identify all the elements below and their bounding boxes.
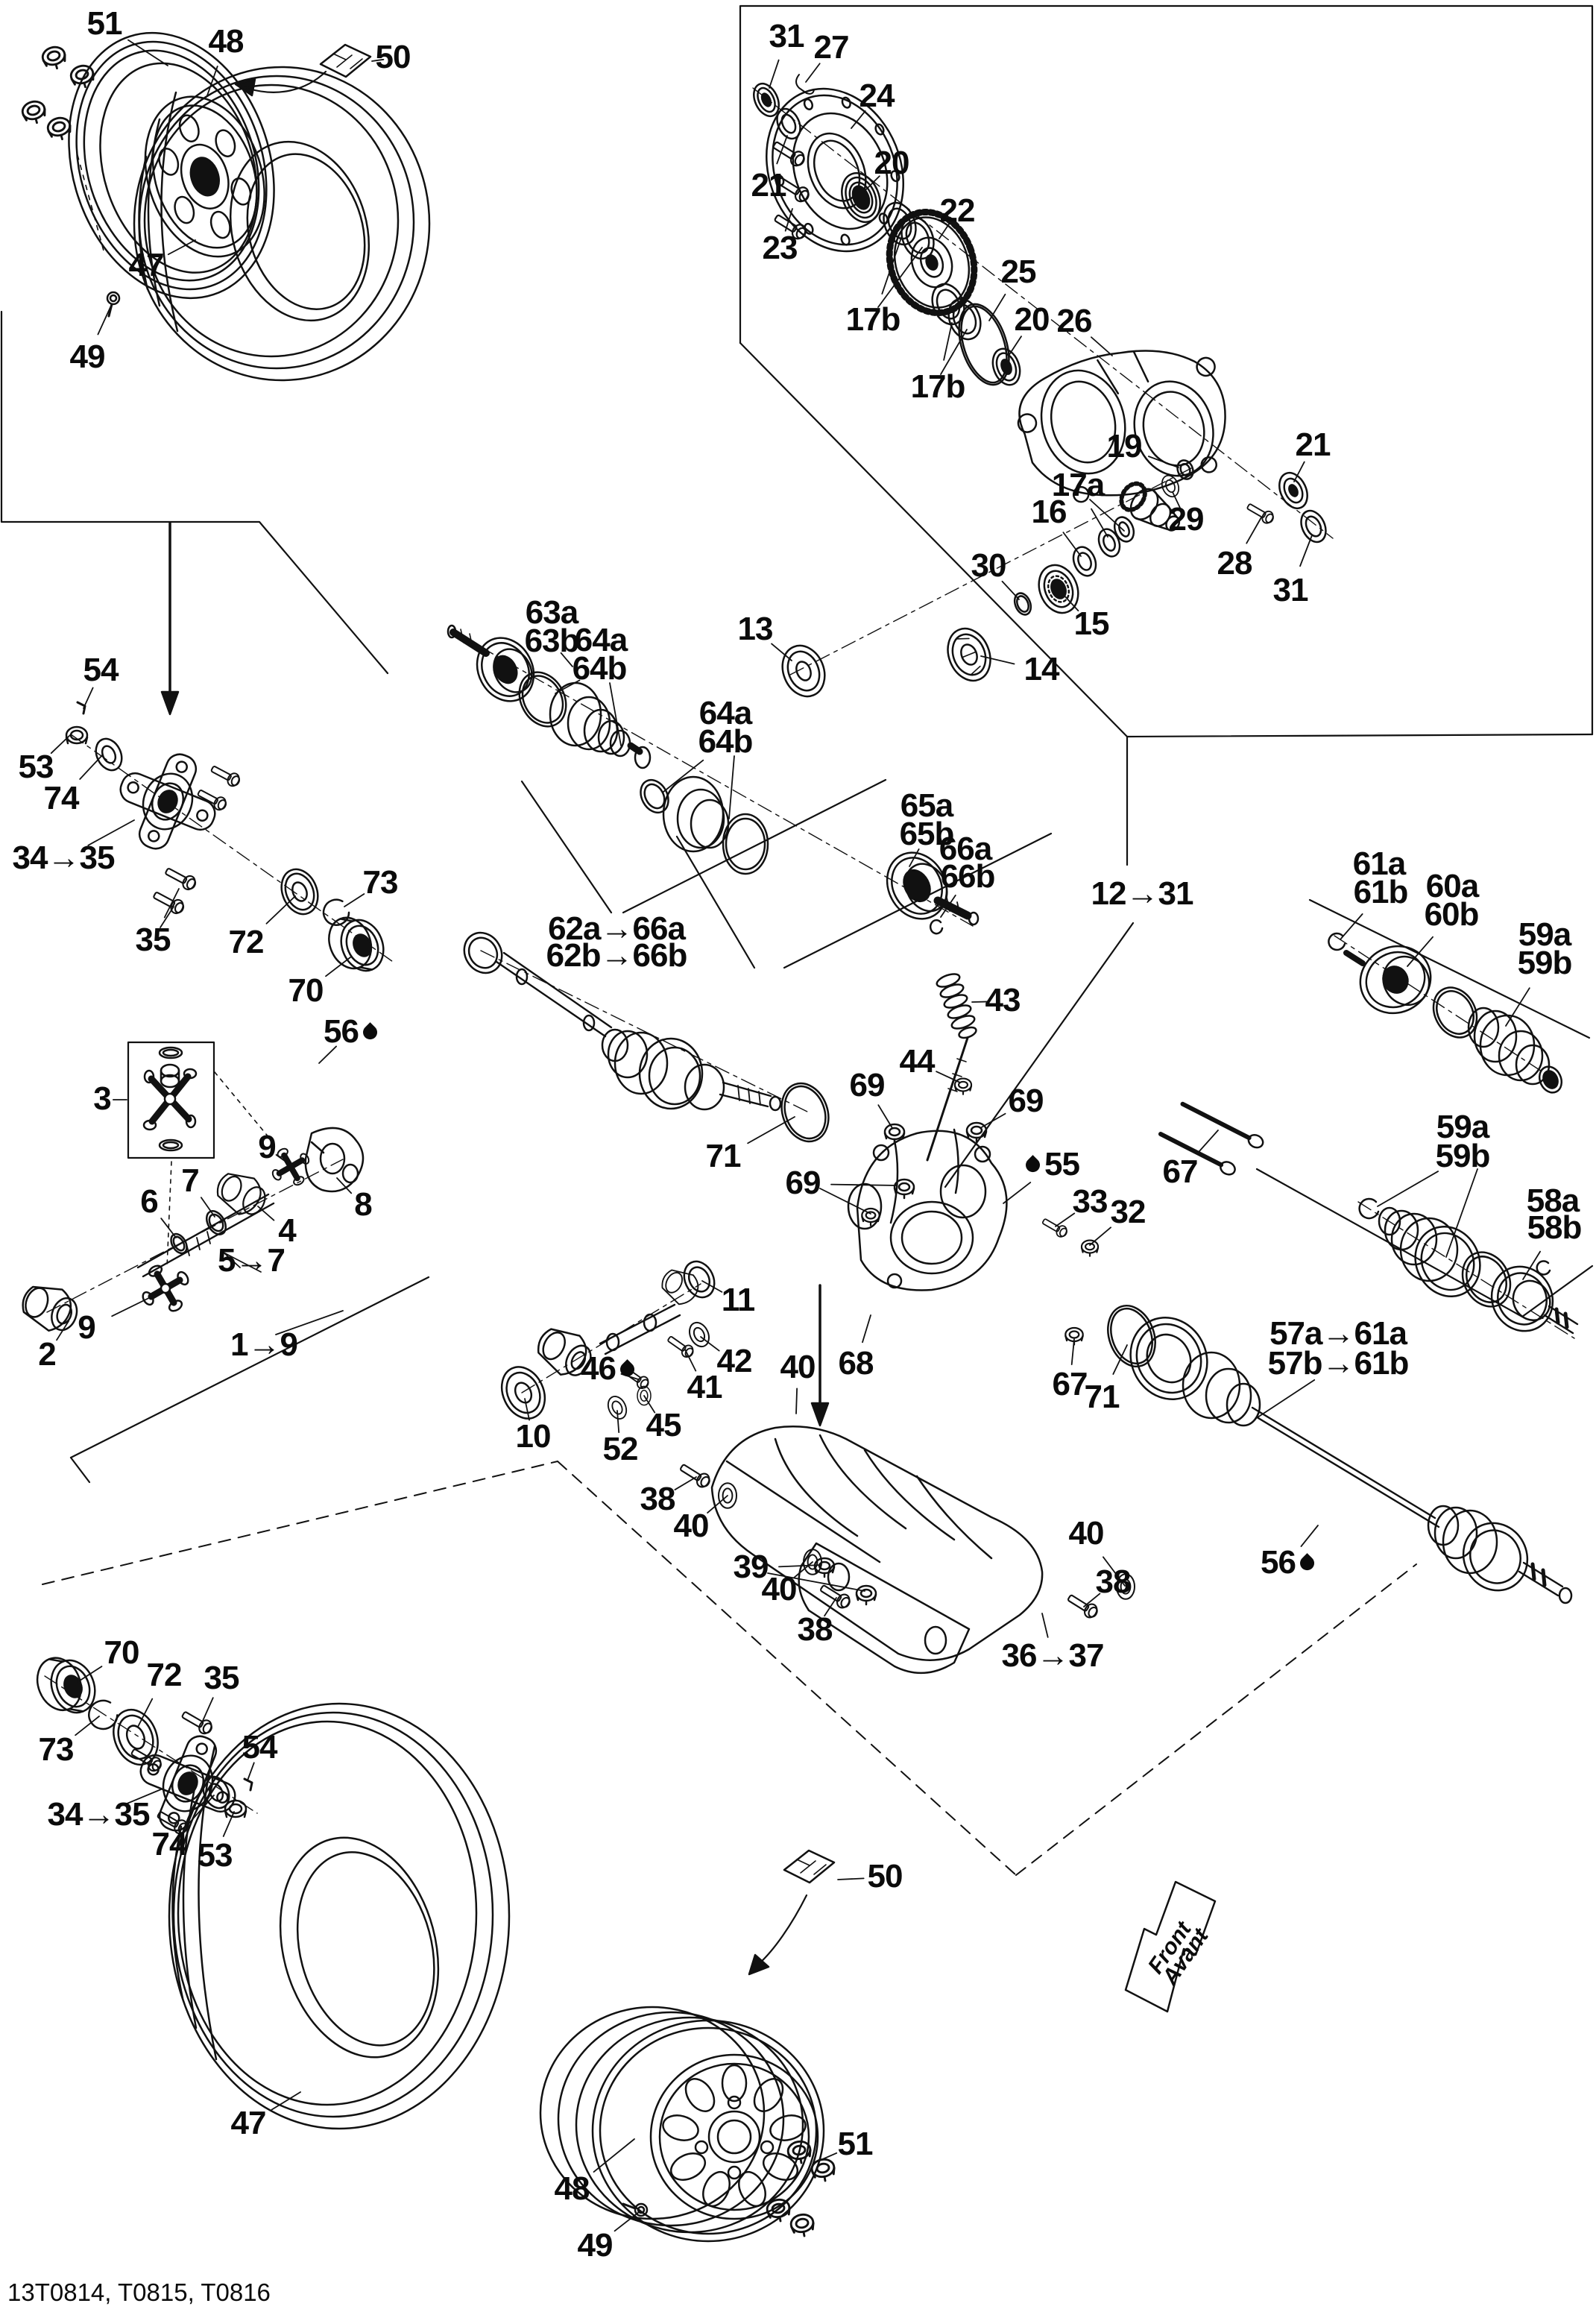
output-knuckle	[306, 1128, 363, 1191]
diagram-art: Front Avant	[0, 0, 1596, 2315]
wheel-hub	[104, 737, 232, 866]
front-propshaft	[16, 1128, 363, 1338]
parts-diagram-page: Front Avant 51485047493127242120232217b2…	[0, 0, 1596, 2315]
footer-code: 13T0814, T0815, T0816	[7, 2278, 271, 2307]
u-joint-kit-box	[128, 1042, 273, 1267]
rear-tire	[169, 1704, 509, 2129]
rear-propshaft	[493, 1256, 719, 1426]
slip-yoke	[16, 1279, 83, 1338]
valve-stem-top	[78, 155, 119, 316]
flow-arrow-down-front	[162, 523, 178, 714]
front-axle-assembled	[457, 926, 836, 1148]
front-axle-kits	[448, 626, 978, 933]
front-tire	[134, 67, 429, 380]
dashed-boundary	[42, 1461, 1416, 1875]
tire-info-sticker-bottom	[784, 1851, 834, 1883]
skid-plate	[678, 1426, 1135, 1673]
rear-gearcase	[848, 971, 1265, 1291]
sticker-arrow-bottom	[749, 1895, 807, 1974]
front-differential	[742, 68, 1330, 702]
cv-boot-kit-2	[663, 777, 768, 874]
u-joint-cross-2	[264, 1140, 318, 1194]
rear-axle-assembled	[1065, 1299, 1571, 1603]
rear-axle-kit-upper	[1328, 933, 1565, 1096]
tire-info-sticker-top	[321, 45, 370, 77]
front-direction-arrow: Front Avant	[1126, 1882, 1215, 2012]
rear-axle-kit-lower	[1360, 1199, 1577, 1342]
front-hub-assembly	[66, 702, 391, 981]
pinion-gear	[1115, 477, 1187, 541]
rear-hub-assembly	[30, 1647, 252, 1848]
rear-wheel-rim	[540, 2007, 824, 2241]
flow-arrow-down-rear	[812, 1285, 828, 1426]
